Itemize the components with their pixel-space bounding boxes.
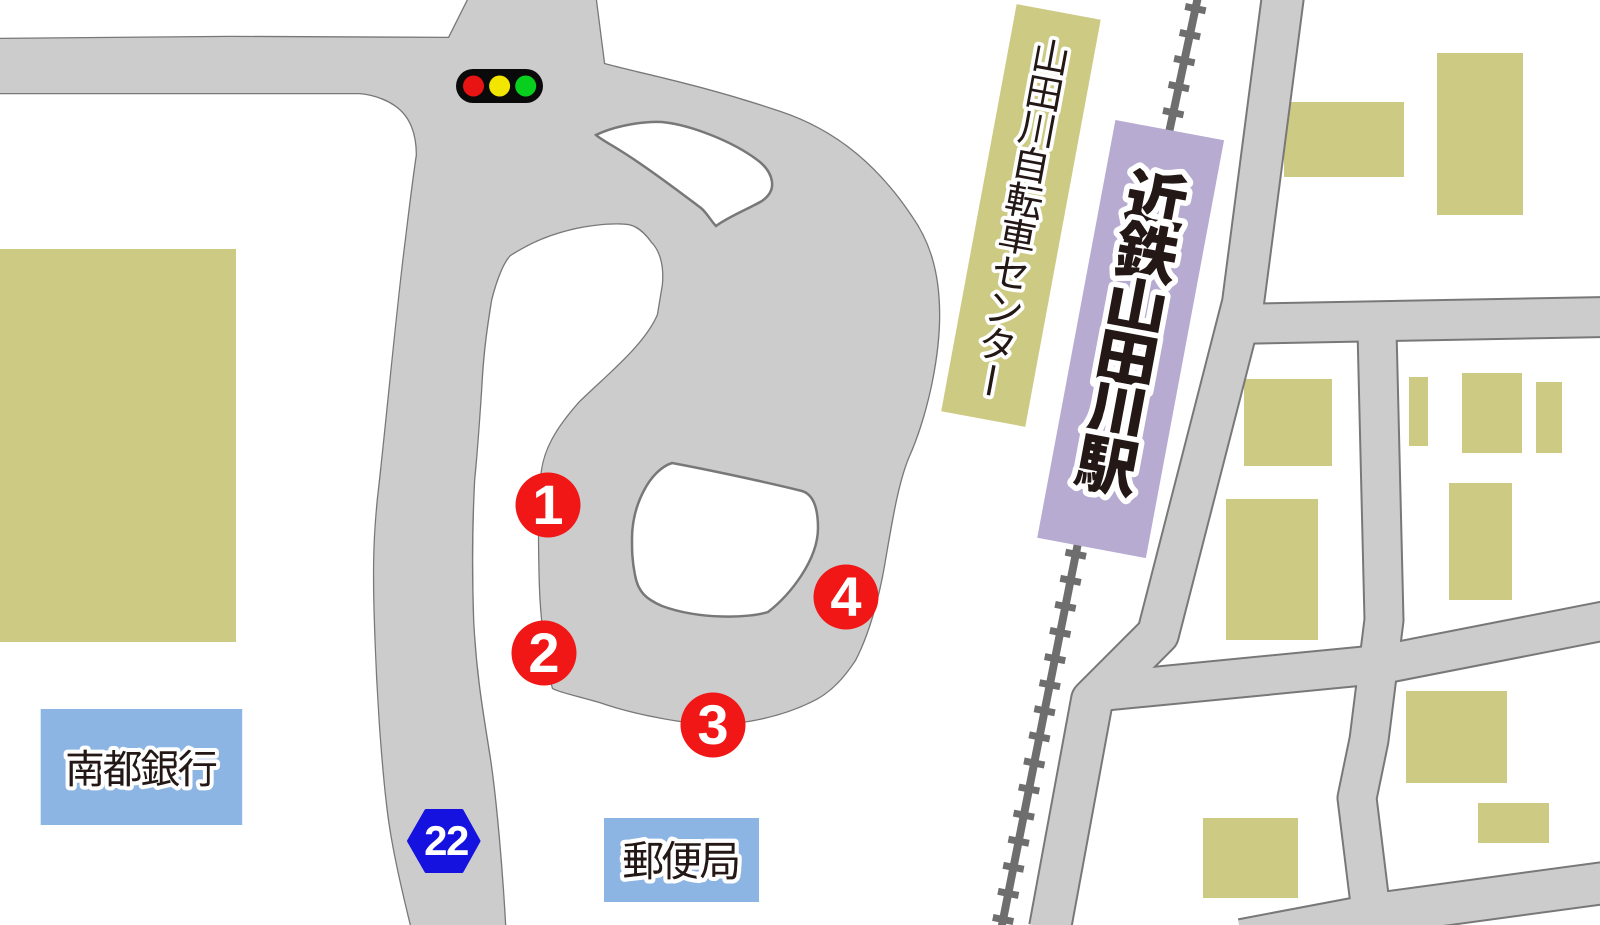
svg-text:22: 22 (424, 817, 468, 864)
svg-text:4: 4 (830, 565, 861, 628)
svg-text:3: 3 (697, 693, 728, 756)
svg-text:2: 2 (528, 621, 559, 684)
svg-text:1: 1 (532, 473, 563, 536)
